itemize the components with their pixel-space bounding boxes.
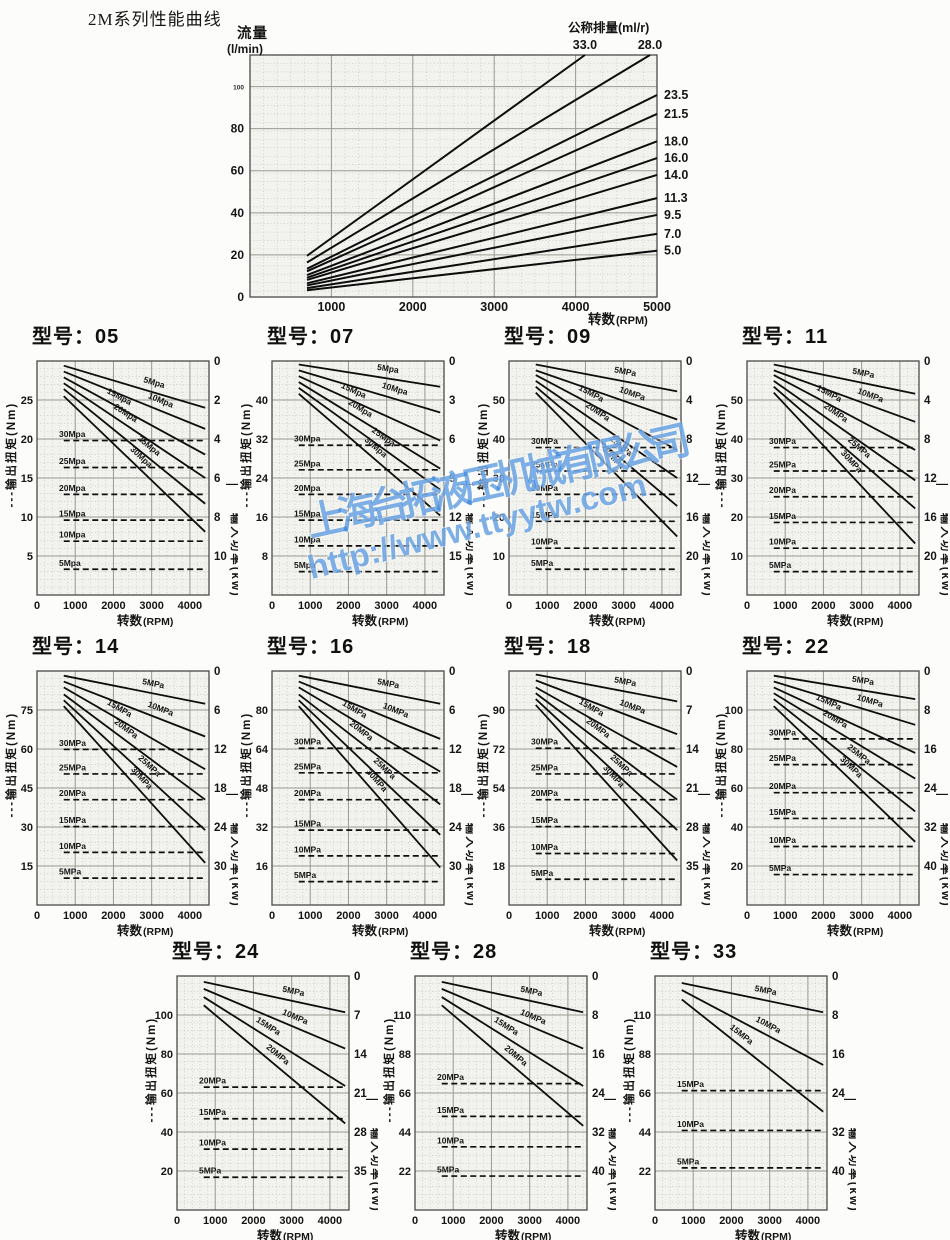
power-line-label: 20MPa (59, 788, 86, 798)
torque-tick: 20 (731, 512, 743, 524)
rpm-tick: 0 (34, 600, 40, 612)
power-tick: 16 (592, 1049, 605, 1061)
power-tick: 7 (686, 705, 692, 717)
torque-axis-title: ---输出扭矩(Nm) (239, 712, 253, 818)
power-line-label: 15MPa (531, 510, 558, 520)
model-chart-svg-33: 5MPa10MPa15MPa15MPa10MPa5MPa110886644220… (620, 964, 856, 1240)
torque-tick: 15 (21, 473, 33, 485)
rpm-tick: 3000 (517, 1215, 541, 1227)
rpm-tick: 3000 (374, 600, 398, 612)
torque-tick: 18 (493, 861, 505, 873)
torque-tick: 48 (256, 783, 268, 795)
x-axis-title: 转数 (589, 613, 615, 628)
power-tick: 0 (214, 356, 220, 368)
rpm-tick: 0 (652, 1215, 658, 1227)
power-line-label: 25MPa (531, 762, 558, 772)
torque-tick: 22 (399, 1166, 411, 1178)
torque-tick: 10 (731, 551, 743, 563)
rpm-tick: 4000 (888, 910, 912, 922)
torque-axis-title: ---输出扭矩(Nm) (476, 712, 490, 818)
torque-tick: 50 (493, 395, 505, 407)
torque-tick: 30 (493, 473, 505, 485)
power-axis-line-symbol: — (461, 786, 473, 800)
torque-tick: 20 (731, 861, 743, 873)
rpm-tick: 2000 (101, 910, 125, 922)
power-tick: 16 (832, 1049, 845, 1061)
rpm-tick: 2000 (573, 600, 597, 612)
power-line-label: 10Mpa (294, 534, 321, 544)
power-line-label: 5MPa (59, 867, 81, 877)
power-line-label: 10MPa (199, 1138, 226, 1148)
power-line-label: 5MPa (769, 863, 791, 873)
power-line-label: 5MPa (437, 1165, 459, 1175)
rpm-tick: 4000 (318, 1215, 342, 1227)
rpm-tick: 0 (506, 600, 512, 612)
power-axis-title: 输入功率(kw) (607, 1128, 616, 1213)
power-axis-title: 输入功率(kw) (464, 513, 473, 598)
power-line-label: 20MPa (199, 1076, 226, 1086)
torque-tick: 80 (161, 1049, 173, 1061)
power-tick: 12 (214, 744, 227, 756)
power-tick: 28 (686, 822, 699, 834)
power-tick: 12 (924, 473, 937, 485)
torque-tick: 44 (639, 1127, 652, 1139)
rpm-tick: 1000 (535, 910, 559, 922)
torque-tick: 5 (27, 551, 33, 563)
rpm-tick: 2000 (573, 910, 597, 922)
torque-tick: 40 (493, 434, 505, 446)
power-tick: 28 (354, 1127, 367, 1139)
rpm-tick: 4000 (650, 910, 674, 922)
power-tick: 2 (214, 395, 220, 407)
power-line-label: 25MPa (769, 459, 796, 469)
torque-axis-title: ---输出扭矩(Nm) (622, 1017, 636, 1123)
rpm-tick: 2000 (336, 600, 360, 612)
rpm-tick: 2000 (719, 1215, 743, 1227)
torque-axis-title: ---输出扭矩(Nm) (714, 712, 728, 818)
power-tick: 20 (686, 551, 699, 563)
power-line-label: 15MPa (769, 511, 796, 521)
power-tick: 0 (832, 971, 838, 983)
x-axis-title: 转数 (117, 923, 143, 938)
rpm-tick: 3000 (374, 910, 398, 922)
power-line-label: 25Mpa (59, 456, 86, 466)
rpm-tick: 1000 (298, 600, 322, 612)
power-axis-line-symbol: — (936, 786, 948, 800)
model-title-16: 型号：16 (267, 630, 473, 659)
rpm-tick: 3000 (611, 910, 635, 922)
model-chart-svg-14: 5MPa10MPa15MPa20MPa25MPa30MPa30MPa25MPa2… (2, 659, 238, 941)
power-tick: 6 (214, 705, 220, 717)
torque-tick: 15 (21, 861, 33, 873)
model-chart-svg-09: 5MPa10MPa15MPa20MPa25MPa30MPa30MPa25MPa2… (474, 349, 710, 631)
rpm-tick: 4000 (888, 600, 912, 612)
x-axis-title: 转数 (352, 613, 378, 628)
rpm-tick: 4000 (650, 600, 674, 612)
rpm-tick: 1000 (773, 910, 797, 922)
power-tick: 12 (686, 473, 699, 485)
rpm-tick: 3000 (849, 910, 873, 922)
rpm-tick: 1000 (535, 600, 559, 612)
model-chart-07: 型号：075Mpa10Mpa15Mpa20Mpa25Mpa30Mpa30Mpa2… (237, 320, 473, 628)
power-line-label: 10MPa (769, 835, 796, 845)
model-chart-11: 型号：115MPa10MPa15MPa20MPa25MPa30MPa30MPa2… (712, 320, 948, 628)
torque-axis-title: ---输出扭矩(Nm) (714, 402, 728, 508)
torque-tick: 20 (493, 512, 505, 524)
power-axis-line-symbol: — (844, 1091, 856, 1105)
torque-tick: 16 (256, 512, 268, 524)
torque-tick: 20 (21, 434, 33, 446)
rpm-tick: 1000 (681, 1215, 705, 1227)
power-tick: 0 (924, 356, 930, 368)
torque-axis-title: ---输出扭矩(Nm) (4, 402, 18, 508)
power-tick: 32 (832, 1127, 845, 1139)
x-axis-unit: (RPM) (761, 1231, 791, 1240)
power-line-label: 20Mpa (59, 483, 86, 493)
power-tick: 0 (354, 971, 360, 983)
power-line-label: 15Mpa (294, 509, 321, 519)
power-tick: 40 (832, 1166, 845, 1178)
model-chart-svg-11: 5MPa10MPa15MPa20MPa25MPa30MPa30MPa25MPa2… (712, 349, 948, 631)
rpm-tick: 0 (34, 910, 40, 922)
power-line-label: 15MPa (769, 807, 796, 817)
power-line-label: 10MPa (294, 844, 321, 854)
torque-tick: 88 (399, 1049, 411, 1061)
model-chart-svg-28: 5MPa10MPa15MPa20MPa20MPa15MPa10MPa5MPa11… (380, 964, 616, 1240)
power-line-label: 30Mpa (294, 434, 321, 444)
power-axis-line-symbol: — (604, 1091, 616, 1105)
power-tick: 9 (449, 473, 455, 485)
model-title-28: 型号：28 (410, 935, 616, 964)
power-tick: 0 (686, 356, 692, 368)
power-tick: 14 (354, 1049, 367, 1061)
power-line-label: 5MPa (677, 1156, 699, 1166)
rpm-tick: 3000 (279, 1215, 303, 1227)
power-tick: 8 (686, 434, 693, 446)
rpm-tick: 0 (744, 910, 750, 922)
torque-tick: 72 (493, 744, 505, 756)
rpm-tick: 4000 (796, 1215, 820, 1227)
torque-tick: 10 (21, 512, 33, 524)
x-axis-unit: (RPM) (853, 616, 883, 628)
power-line-label: 30MPa (59, 738, 86, 748)
power-tick: 40 (592, 1166, 605, 1178)
torque-tick: 40 (256, 395, 268, 407)
rpm-tick: 2000 (241, 1215, 265, 1227)
rpm-tick: 2000 (811, 600, 835, 612)
model-chart-05: 型号：055Mpa10Mpa15Mpa20Mpa25Mpa30Mpa30Mpa2… (2, 320, 238, 628)
model-chart-33: 型号：335MPa10MPa15MPa15MPa10MPa5MPa1108866… (620, 935, 856, 1240)
model-chart-18: 型号：185MPa10MPa15MPa20MPa25MPa30MPa30MPa2… (474, 630, 710, 938)
torque-tick: 88 (639, 1049, 651, 1061)
rpm-tick: 3000 (849, 600, 873, 612)
rpm-tick: 4000 (413, 910, 437, 922)
power-line-label: 10MPa (531, 842, 558, 852)
torque-tick: 66 (399, 1088, 411, 1100)
power-line-label: 20MPa (769, 485, 796, 495)
torque-tick: 30 (731, 473, 743, 485)
torque-tick: 30 (21, 822, 33, 834)
power-line-label: 10MPa (437, 1135, 464, 1145)
power-axis-title: 输入功率(kw) (701, 823, 710, 908)
x-axis-title: 转数 (827, 613, 853, 628)
model-chart-14: 型号：145MPa10MPa15MPa20MPa25MPa30MPa30MPa2… (2, 630, 238, 938)
power-line-label: 5MPa (294, 870, 316, 880)
power-axis-title: 输入功率(kw) (939, 513, 948, 598)
power-tick: 10 (214, 551, 227, 563)
document-page: 2M系列性能曲线 33.028.023.521.518.016.014.011.… (0, 0, 950, 1240)
x-axis-title: 转数 (735, 1228, 761, 1240)
torque-tick: 20 (161, 1166, 173, 1178)
model-title-22: 型号：22 (742, 630, 948, 659)
power-line-label: 10MPa (769, 537, 796, 547)
rpm-tick: 1000 (441, 1215, 465, 1227)
model-title-24: 型号：24 (172, 935, 378, 964)
rpm-tick: 2000 (336, 910, 360, 922)
power-line-label: 15MPa (59, 815, 86, 825)
rpm-tick: 0 (744, 600, 750, 612)
power-tick: 30 (449, 861, 462, 873)
power-tick: 32 (592, 1127, 605, 1139)
x-axis-unit: (RPM) (853, 926, 883, 938)
x-axis-unit: (RPM) (283, 1231, 313, 1240)
torque-tick: 24 (256, 473, 269, 485)
power-axis-title: 输入功率(kw) (847, 1128, 856, 1213)
power-line-label: 5Mpa (59, 558, 81, 568)
model-chart-28: 型号：285MPa10MPa15MPa20MPa20MPa15MPa10MPa5… (380, 935, 616, 1240)
power-axis-title: 输入功率(kw) (701, 513, 710, 598)
model-chart-24: 型号：245MPa10MPa15MPa20MPa20MPa15MPa10MPa5… (142, 935, 378, 1240)
model-title-18: 型号：18 (504, 630, 710, 659)
power-line-label: 30Mpa (59, 429, 86, 439)
rpm-tick: 1000 (63, 910, 87, 922)
rpm-tick: 2000 (101, 600, 125, 612)
power-line-label: 15MPa (531, 815, 558, 825)
power-line-label: 30MPa (531, 737, 558, 747)
power-line-label: 15MPa (677, 1079, 704, 1089)
power-tick: 40 (924, 861, 937, 873)
power-line-label: 30MPa (769, 727, 796, 737)
x-axis-unit: (RPM) (143, 616, 173, 628)
power-tick: 15 (449, 551, 462, 563)
power-line-label: 10MPa (677, 1119, 704, 1129)
rpm-tick: 0 (506, 910, 512, 922)
power-line-label: 5MPa (199, 1166, 221, 1176)
power-line-label: 30MPa (769, 436, 796, 446)
model-title-09: 型号：09 (504, 320, 710, 349)
power-line-label: 10Mpa (59, 530, 86, 540)
rpm-tick: 0 (412, 1215, 418, 1227)
power-tick: 20 (924, 551, 937, 563)
power-tick: 6 (449, 434, 455, 446)
torque-tick: 40 (731, 822, 743, 834)
power-tick: 8 (214, 512, 221, 524)
power-tick: 8 (592, 1010, 599, 1022)
torque-axis-title: ---输出扭矩(Nm) (4, 712, 18, 818)
torque-tick: 66 (639, 1088, 651, 1100)
power-line-label: 25MPa (531, 459, 558, 469)
x-axis-title: 转数 (495, 1228, 521, 1240)
torque-tick: 32 (256, 822, 268, 834)
power-axis-line-symbol: — (366, 1091, 378, 1105)
power-tick: 7 (354, 1010, 360, 1022)
model-title-33: 型号：33 (650, 935, 856, 964)
power-line-label: 10MPa (531, 537, 558, 547)
power-tick: 0 (214, 666, 220, 678)
rpm-tick: 3000 (139, 600, 163, 612)
power-axis-title: 输入功率(kw) (369, 1128, 378, 1213)
model-chart-svg-05: 5Mpa10Mpa15Mpa20Mpa25Mpa30Mpa30Mpa25Mpa2… (2, 349, 238, 631)
rpm-tick: 0 (269, 910, 275, 922)
power-tick: 6 (449, 705, 455, 717)
power-tick: 6 (214, 473, 220, 485)
power-line-label: 25MPa (59, 762, 86, 772)
power-tick: 35 (354, 1166, 367, 1178)
power-tick: 4 (214, 434, 221, 446)
torque-tick: 25 (21, 395, 33, 407)
model-charts-grid: 型号：055Mpa10Mpa15Mpa20Mpa25Mpa30Mpa30Mpa2… (0, 0, 950, 1240)
power-tick: 8 (924, 434, 931, 446)
torque-tick: 50 (731, 395, 743, 407)
power-line-label: 20Mpa (294, 483, 321, 493)
power-line-label: 5MPa (769, 560, 791, 570)
model-chart-svg-22: 5MPa10MPa15MPa20MPa25MPa30MPa30MPa25MPa2… (712, 659, 948, 941)
torque-tick: 60 (731, 783, 743, 795)
power-tick: 24 (449, 822, 462, 834)
power-line-label: 25MPa (294, 761, 321, 771)
torque-tick: 45 (21, 783, 33, 795)
torque-tick: 64 (256, 744, 269, 756)
power-tick: 30 (214, 861, 227, 873)
rpm-tick: 2000 (811, 910, 835, 922)
rpm-tick: 0 (269, 600, 275, 612)
power-tick: 16 (924, 744, 937, 756)
x-axis-unit: (RPM) (615, 616, 645, 628)
power-tick: 0 (592, 971, 598, 983)
power-tick: 4 (924, 395, 931, 407)
power-tick: 16 (924, 512, 937, 524)
power-axis-title: 输入功率(kw) (939, 823, 948, 908)
power-tick: 0 (449, 666, 455, 678)
model-title-05: 型号：05 (32, 320, 238, 349)
rpm-tick: 1000 (203, 1215, 227, 1227)
model-chart-16: 型号：165MPa10MPa15MPa20MPa25MPa30MPa30MPa2… (237, 630, 473, 938)
power-tick: 35 (686, 861, 699, 873)
power-axis-line-symbol: — (461, 476, 473, 490)
power-line-label: 20MPa (294, 788, 321, 798)
power-line-label: 30MPa (531, 436, 558, 446)
torque-axis-title: ---输出扭矩(Nm) (239, 402, 253, 508)
torque-tick: 80 (256, 705, 268, 717)
rpm-tick: 1000 (298, 910, 322, 922)
torque-axis-title: ---输出扭矩(Nm) (382, 1017, 396, 1123)
power-tick: 12 (449, 744, 462, 756)
power-tick: 24 (214, 822, 227, 834)
model-chart-svg-07: 5Mpa10Mpa15Mpa20Mpa25Mpa30Mpa30Mpa25Mpa2… (237, 349, 473, 631)
torque-axis-title: ---输出扭矩(Nm) (144, 1017, 158, 1123)
power-line-label: 20MPa (531, 483, 558, 493)
torque-tick: 40 (731, 434, 743, 446)
power-line-label: 20MPa (769, 781, 796, 791)
x-axis-title: 转数 (117, 613, 143, 628)
power-tick: 8 (832, 1010, 839, 1022)
power-line-label: 5Mpa (294, 560, 316, 570)
torque-tick: 40 (161, 1127, 173, 1139)
x-axis-unit: (RPM) (521, 1231, 551, 1240)
power-axis-line-symbol: — (698, 786, 710, 800)
power-tick: 3 (449, 395, 455, 407)
power-tick: 14 (686, 744, 699, 756)
power-line-label: 20MPa (531, 788, 558, 798)
power-line-label: 5MPa (531, 868, 553, 878)
torque-tick: 16 (256, 861, 268, 873)
model-chart-svg-16: 5MPa10MPa15MPa20MPa25MPa30MPa30MPa25MPa2… (237, 659, 473, 941)
power-axis-title: 输入功率(kw) (464, 823, 473, 908)
power-line-label: 15MPa (294, 819, 321, 829)
power-line-label: 15Mpa (59, 509, 86, 519)
power-line-label: 25MPa (769, 753, 796, 763)
rpm-tick: 4000 (178, 910, 202, 922)
model-title-14: 型号：14 (32, 630, 238, 659)
power-axis-line-symbol: — (698, 476, 710, 490)
power-line-label: 30MPa (294, 737, 321, 747)
rpm-tick: 3000 (139, 910, 163, 922)
power-line-label: 15MPa (437, 1105, 464, 1115)
torque-tick: 75 (21, 705, 33, 717)
power-line-label: 5MPa (531, 558, 553, 568)
torque-tick: 32 (256, 434, 268, 446)
torque-tick: 36 (493, 822, 505, 834)
rpm-tick: 3000 (757, 1215, 781, 1227)
rpm-tick: 2000 (479, 1215, 503, 1227)
model-chart-svg-24: 5MPa10MPa15MPa20MPa20MPa15MPa10MPa5MPa10… (142, 964, 378, 1240)
power-tick: 32 (924, 822, 937, 834)
rpm-tick: 4000 (178, 600, 202, 612)
power-tick: 0 (449, 356, 455, 368)
torque-tick: 8 (262, 551, 268, 563)
power-line-label: 15MPa (199, 1107, 226, 1117)
model-title-07: 型号：07 (267, 320, 473, 349)
torque-tick: 22 (639, 1166, 651, 1178)
torque-tick: 44 (399, 1127, 412, 1139)
torque-tick: 90 (493, 705, 505, 717)
power-tick: 16 (686, 512, 699, 524)
model-chart-22: 型号：225MPa10MPa15MPa20MPa25MPa30MPa30MPa2… (712, 630, 948, 938)
power-tick: 4 (686, 395, 693, 407)
rpm-tick: 3000 (611, 600, 635, 612)
power-tick: 8 (924, 705, 931, 717)
power-axis-line-symbol: — (936, 476, 948, 490)
power-line-label: 25Mpa (294, 458, 321, 468)
model-title-11: 型号：11 (742, 320, 948, 349)
x-axis-unit: (RPM) (378, 616, 408, 628)
model-chart-09: 型号：095MPa10MPa15MPa20MPa25MPa30MPa30MPa2… (474, 320, 710, 628)
rpm-tick: 1000 (63, 600, 87, 612)
torque-tick: 80 (731, 744, 743, 756)
torque-tick: 54 (493, 783, 506, 795)
power-tick: 0 (924, 666, 930, 678)
rpm-tick: 1000 (773, 600, 797, 612)
x-axis-title: 转数 (257, 1228, 283, 1240)
power-line-label: 10MPa (59, 841, 86, 851)
power-tick: 12 (449, 512, 462, 524)
model-chart-svg-18: 5MPa10MPa15MPa20MPa25MPa30MPa30MPa25MPa2… (474, 659, 710, 941)
power-line-label: 20MPa (437, 1072, 464, 1082)
power-tick: 0 (686, 666, 692, 678)
rpm-tick: 4000 (556, 1215, 580, 1227)
rpm-tick: 0 (174, 1215, 180, 1227)
rpm-tick: 4000 (413, 600, 437, 612)
